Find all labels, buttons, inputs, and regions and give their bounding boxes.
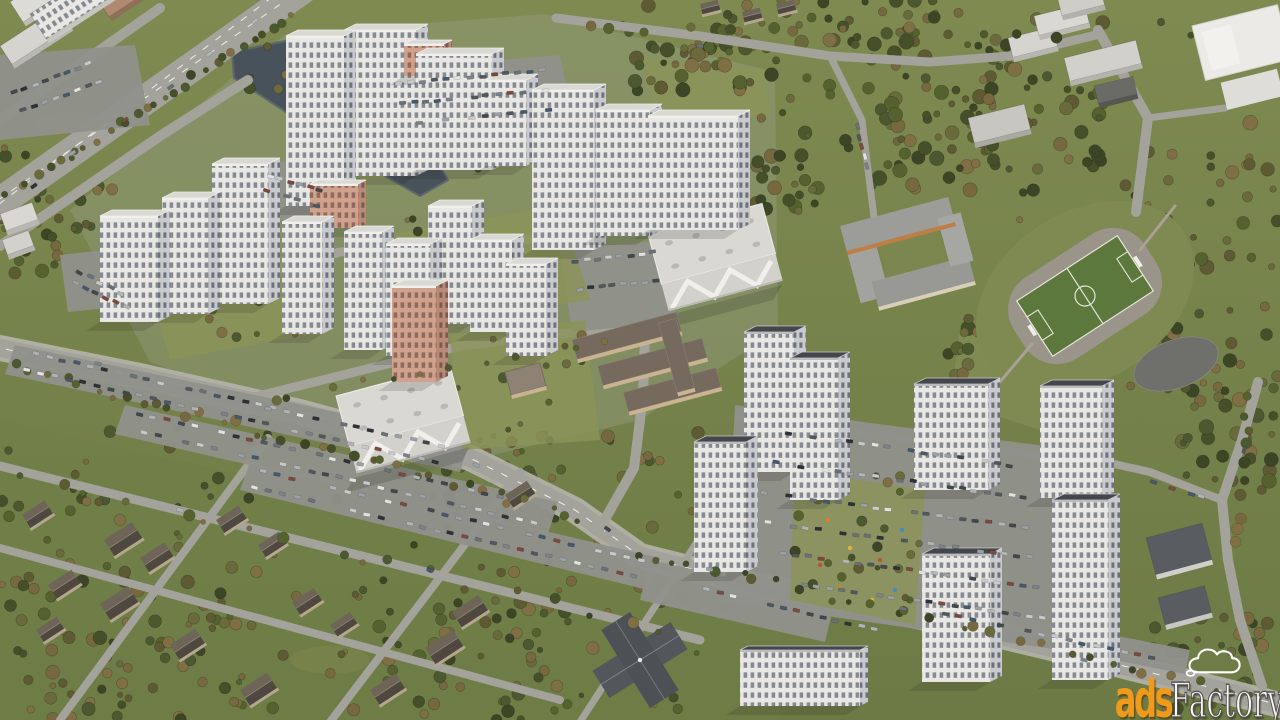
scene-canvas	[0, 0, 1280, 720]
aerial-render: ads Factory	[0, 0, 1280, 720]
